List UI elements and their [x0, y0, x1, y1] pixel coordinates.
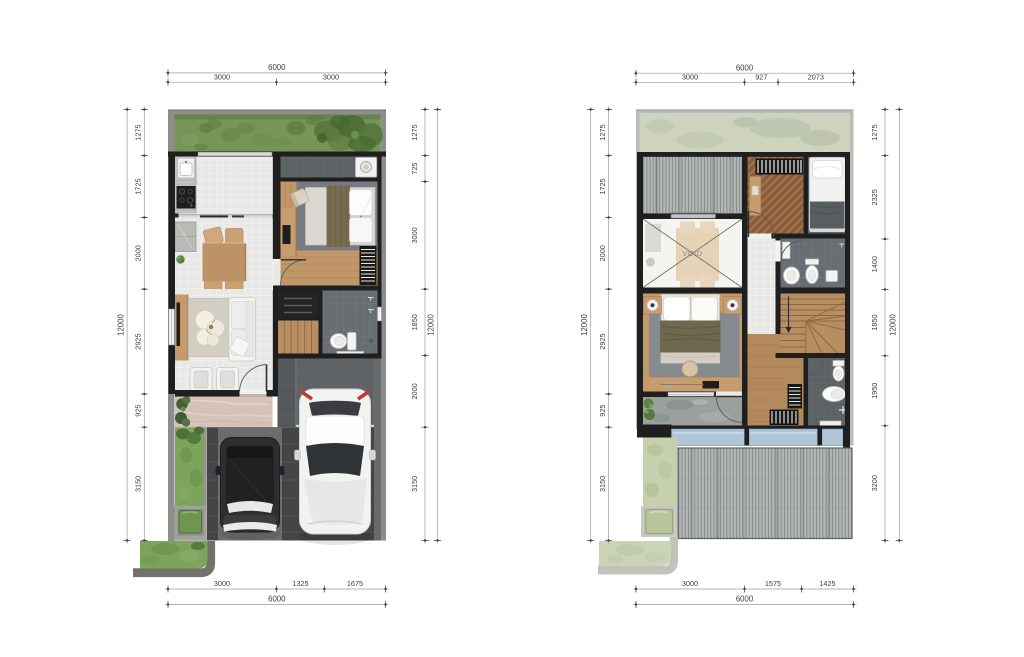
- svg-text:1675: 1675: [347, 579, 363, 588]
- svg-text:1325: 1325: [292, 579, 308, 588]
- svg-text:1850: 1850: [410, 314, 419, 330]
- svg-text:1275: 1275: [870, 124, 879, 140]
- svg-text:925: 925: [134, 405, 143, 417]
- svg-text:925: 925: [598, 405, 607, 417]
- svg-text:2073: 2073: [808, 73, 824, 82]
- svg-text:1275: 1275: [134, 124, 143, 140]
- svg-text:12000: 12000: [427, 313, 436, 335]
- svg-text:3000: 3000: [410, 227, 419, 243]
- svg-text:1575: 1575: [765, 579, 781, 588]
- svg-text:6000: 6000: [268, 63, 286, 72]
- svg-text:12000: 12000: [580, 313, 589, 335]
- svg-text:3150: 3150: [134, 476, 143, 492]
- svg-text:3000: 3000: [214, 72, 230, 81]
- svg-text:3000: 3000: [682, 73, 698, 82]
- svg-text:1950: 1950: [870, 383, 879, 399]
- svg-text:6000: 6000: [736, 595, 754, 604]
- svg-text:2925: 2925: [598, 333, 607, 349]
- svg-text:3150: 3150: [598, 476, 607, 492]
- svg-text:3000: 3000: [214, 579, 230, 588]
- svg-text:3150: 3150: [410, 476, 419, 492]
- svg-text:12000: 12000: [889, 313, 898, 335]
- svg-text:927: 927: [755, 73, 767, 82]
- svg-text:2000: 2000: [598, 245, 607, 261]
- svg-text:725: 725: [410, 163, 419, 175]
- svg-text:12000: 12000: [116, 313, 125, 335]
- svg-text:3200: 3200: [870, 475, 879, 491]
- svg-text:3000: 3000: [682, 579, 698, 588]
- svg-text:1725: 1725: [134, 178, 143, 194]
- svg-text:1400: 1400: [870, 256, 879, 272]
- svg-text:6000: 6000: [736, 63, 754, 72]
- svg-text:1275: 1275: [598, 124, 607, 140]
- svg-text:2925: 2925: [134, 333, 143, 349]
- svg-text:2000: 2000: [134, 245, 143, 261]
- svg-text:1725: 1725: [598, 178, 607, 194]
- svg-text:1425: 1425: [819, 579, 835, 588]
- svg-text:1850: 1850: [870, 314, 879, 330]
- svg-text:3000: 3000: [323, 72, 339, 81]
- svg-text:VOID: VOID: [683, 249, 703, 258]
- svg-text:2000: 2000: [410, 383, 419, 399]
- svg-text:6000: 6000: [268, 595, 286, 604]
- svg-text:1275: 1275: [410, 124, 419, 140]
- svg-text:2325: 2325: [870, 189, 879, 205]
